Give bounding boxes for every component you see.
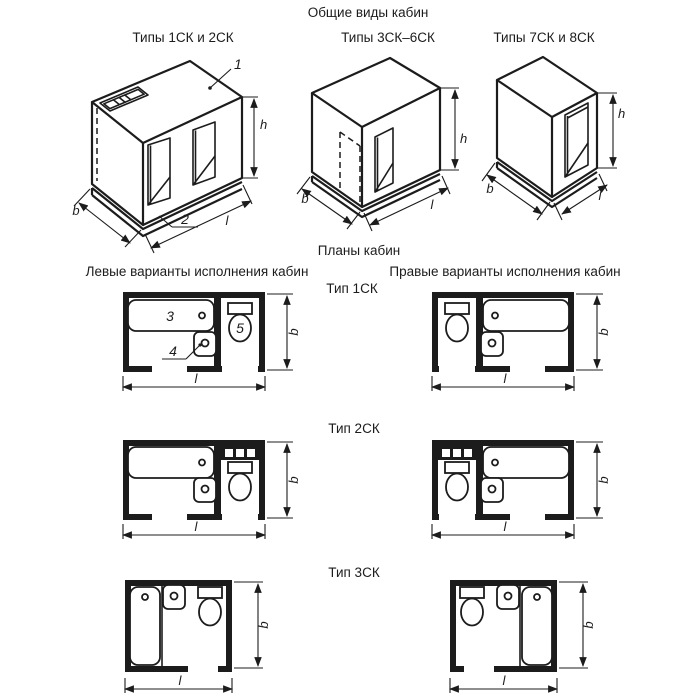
- cabin-body: [92, 61, 242, 236]
- dim-label-l: l: [504, 371, 508, 386]
- height-dimension: h: [598, 93, 625, 168]
- length-dimension: l: [432, 519, 574, 539]
- room-plan-mirrored: [450, 580, 557, 672]
- dim-label-l: l: [503, 673, 507, 688]
- room-plan: [123, 440, 265, 520]
- dim-label-b: b: [301, 191, 308, 206]
- plan-type-title-1sk: Тип 1СК: [326, 281, 377, 296]
- width-dimension: b: [559, 582, 596, 668]
- roof-face: [312, 58, 440, 127]
- plan-type-2sk-left: b l: [110, 436, 310, 542]
- plan-type-title-2sk: Тип 2СК: [328, 421, 379, 436]
- dim-label-b: b: [286, 328, 301, 335]
- dim-label-h: h: [260, 117, 267, 132]
- length-dimension: l: [554, 174, 607, 220]
- room-plan-mirrored: [432, 292, 574, 372]
- left-face: [92, 102, 143, 225]
- column-title-left-variants: Левые варианты исполнения кабин: [86, 264, 309, 279]
- dim-label-h: h: [460, 131, 467, 146]
- roof-face: [92, 61, 242, 143]
- shared-defs: [0, 0, 1, 1]
- dim-label-b: b: [596, 476, 611, 483]
- callout-label-4: 4: [169, 343, 177, 359]
- iso-view-types-7sk-8sk: h b l: [470, 50, 655, 235]
- view-title-types-1sk-2sk: Типы 1СК и 2СК: [132, 30, 233, 45]
- width-dimension: b: [576, 294, 611, 370]
- length-dimension: l: [145, 185, 252, 253]
- dim-label-l: l: [226, 213, 230, 228]
- dim-label-l: l: [195, 371, 199, 386]
- door-opening: [565, 103, 588, 177]
- length-dimension: l: [450, 673, 557, 693]
- door-opening-1: [148, 138, 170, 205]
- section-title-plans: Планы кабин: [318, 243, 400, 258]
- dim-label-l: l: [195, 519, 199, 534]
- cabin-body: [497, 57, 597, 207]
- base-bottom-edge: [92, 188, 242, 236]
- plan-type-title-3sk: Тип 3СК: [328, 565, 379, 580]
- plan-type-1sk-right: b l: [415, 288, 620, 394]
- plan-type-1sk-left: 3 4 5 b l: [110, 288, 310, 394]
- dim-label-b: b: [286, 476, 301, 483]
- dim-label-h: h: [618, 106, 625, 121]
- dim-label-l: l: [504, 519, 508, 534]
- view-title-types-7sk-8sk: Типы 7СК и 8СК: [493, 30, 594, 45]
- width-dimension: b: [576, 442, 611, 518]
- cabin-body: [312, 58, 440, 217]
- drawing-canvas: Общие виды кабин Типы 1СК и 2СК Типы 3СК…: [0, 0, 700, 700]
- iso-view-types-1sk-2sk: h b l 1 2: [55, 55, 285, 255]
- roof-vent-grille: [100, 87, 148, 111]
- height-dimension: h: [441, 88, 467, 170]
- width-dimension: b: [267, 442, 301, 518]
- width-dimension: b: [267, 294, 301, 370]
- dim-label-l: l: [179, 673, 183, 688]
- door-opening: [375, 128, 393, 192]
- dim-label-b: b: [256, 621, 271, 628]
- callout-label-5: 5: [236, 320, 244, 336]
- dim-label-l: l: [431, 197, 435, 212]
- length-dimension: l: [432, 371, 574, 391]
- width-dimension: b: [234, 582, 271, 668]
- length-dimension: l: [123, 519, 265, 539]
- dim-label-b: b: [486, 181, 493, 196]
- dim-label-b: b: [596, 328, 611, 335]
- view-title-types-3sk-6sk: Типы 3СК–6СК: [341, 30, 435, 45]
- plan-type-2sk-right: b l: [415, 436, 620, 542]
- front-face: [362, 88, 440, 207]
- roof-face: [497, 57, 597, 117]
- dim-label-b: b: [72, 203, 79, 218]
- plan-type-3sk-right: b l: [415, 576, 600, 700]
- section-title-general-views: Общие виды кабин: [308, 5, 429, 20]
- dim-label-l: l: [599, 188, 603, 203]
- plan-type-3sk-left: b l: [110, 576, 290, 700]
- column-title-right-variants: Правые варианты исполнения кабин: [389, 264, 620, 279]
- room-plan-mirrored: [432, 440, 574, 520]
- room-plan: [125, 580, 232, 672]
- callout-label-2: 2: [180, 211, 189, 227]
- dim-label-b: b: [581, 621, 596, 628]
- iso-view-types-3sk-6sk: h b l: [285, 55, 470, 235]
- length-dimension: l: [125, 673, 232, 693]
- height-dimension: h: [243, 97, 267, 178]
- door-opening-2: [193, 122, 215, 185]
- callout-label-1: 1: [234, 56, 242, 72]
- callout-label-3: 3: [166, 308, 174, 324]
- length-dimension: l: [123, 371, 265, 391]
